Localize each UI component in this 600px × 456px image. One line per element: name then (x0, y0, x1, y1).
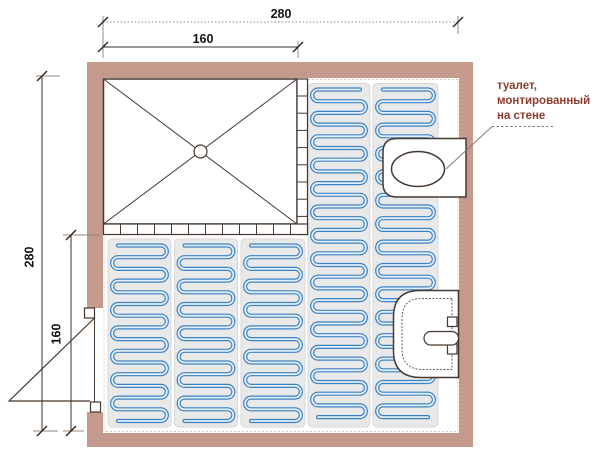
shower-curb-right (297, 79, 308, 235)
toilet-bowl (392, 152, 445, 187)
sink-faucet (424, 332, 459, 346)
dimension-top-280: 280 (98, 7, 463, 58)
annotation-line-2: монтированный (497, 95, 590, 107)
annotation-line-3: на стене (497, 110, 545, 122)
annotation-line-1: туалет, (497, 80, 537, 92)
door-jamb-bottom (91, 402, 101, 412)
wall-mounted-sink (394, 291, 459, 378)
shower-drain (194, 145, 207, 158)
dimension-left-280: 280 (23, 71, 61, 436)
dimension-label-280-top: 280 (271, 7, 292, 21)
wall-mounted-toilet (383, 139, 466, 198)
dimension-label-160-left: 160 (50, 324, 64, 345)
bathroom-floor-plan: туалет, монтированный на стене 280 160 2… (0, 0, 600, 456)
dimension-label-160-top: 160 (193, 32, 214, 46)
wall-top (87, 62, 473, 78)
wall-bottom (87, 433, 473, 447)
shower-tray (104, 79, 308, 235)
sink-tap-top (448, 317, 458, 327)
wall-left-lower (87, 412, 103, 433)
door-jamb-top (85, 308, 95, 318)
dimension-label-280-left: 280 (23, 247, 37, 268)
dimension-top-160: 160 (98, 32, 303, 58)
floor-plan-canvas: туалет, монтированный на стене 280 160 2… (0, 0, 600, 456)
wall-left-upper (87, 62, 103, 308)
wall-right (459, 62, 473, 447)
